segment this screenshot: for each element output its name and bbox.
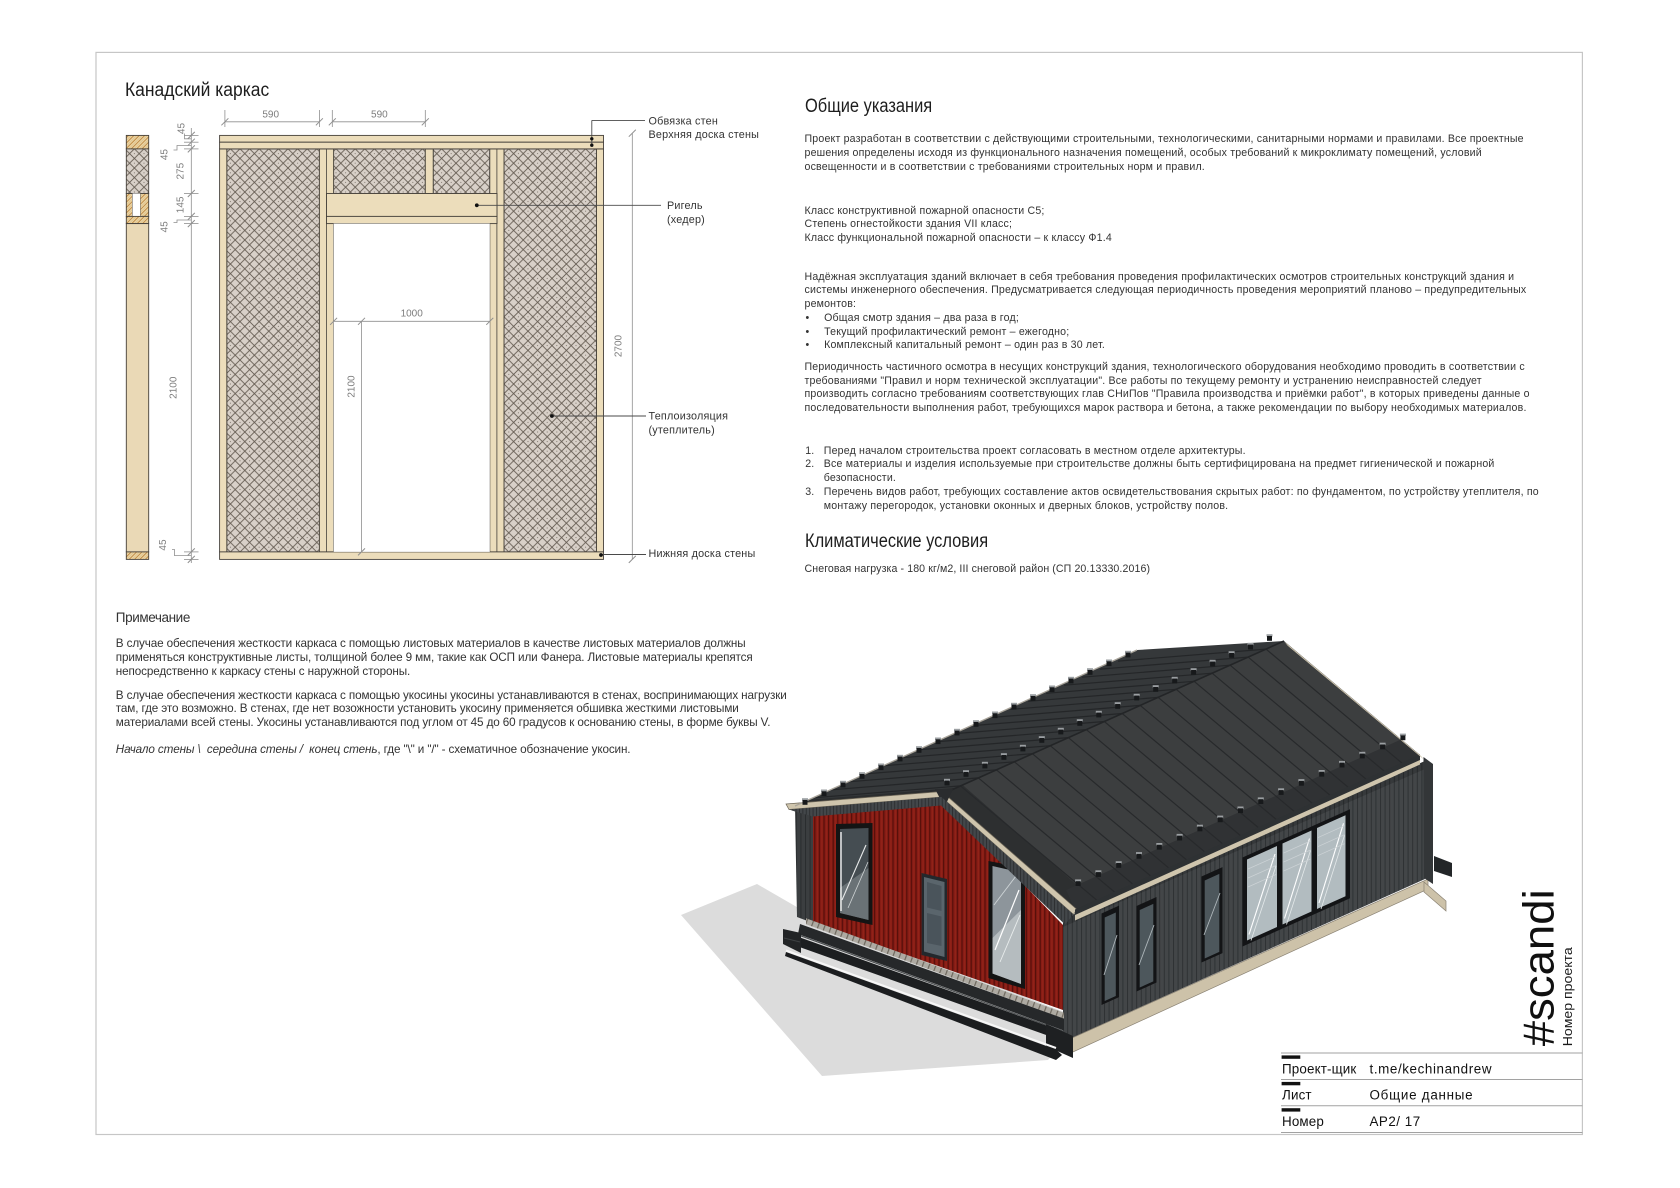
svg-text:45: 45 [160, 221, 171, 233]
svg-text:Номер проекта: Номер проекта [1561, 947, 1575, 1046]
svg-text:Общие данные: Общие данные [1370, 1088, 1474, 1103]
svg-text:145: 145 [176, 196, 187, 213]
svg-text:Обвязка стен: Обвязка стен [649, 115, 719, 127]
svg-text:45: 45 [158, 539, 169, 551]
svg-text:Проект-щик: Проект-щик [1282, 1062, 1356, 1077]
svg-text:1000: 1000 [401, 309, 424, 320]
svg-text:(хедер): (хедер) [667, 214, 705, 226]
svg-text:#scandi: #scandi [1515, 889, 1564, 1046]
svg-text:Теплоизоляция: Теплоизоляция [649, 411, 729, 423]
svg-text:Нижняя доска стены: Нижняя доска стены [649, 548, 756, 560]
svg-text:590: 590 [371, 110, 388, 121]
svg-text:590: 590 [262, 110, 279, 121]
svg-text:2100: 2100 [169, 376, 180, 399]
svg-text:АР2/ 17: АР2/ 17 [1370, 1114, 1421, 1129]
svg-text:275: 275 [176, 162, 187, 179]
svg-text:(утеплитель): (утеплитель) [649, 424, 715, 436]
svg-text:45: 45 [160, 149, 171, 161]
svg-text:2700: 2700 [614, 334, 625, 357]
svg-text:45: 45 [177, 123, 188, 135]
svg-text:Лист: Лист [1282, 1088, 1312, 1103]
svg-text:Номер: Номер [1282, 1114, 1324, 1129]
svg-text:Ригель: Ригель [667, 200, 703, 212]
svg-text:t.me/kechinandrew: t.me/kechinandrew [1370, 1062, 1493, 1077]
svg-text:Верхняя доска стены: Верхняя доска стены [649, 129, 760, 141]
svg-text:2100: 2100 [347, 375, 358, 398]
